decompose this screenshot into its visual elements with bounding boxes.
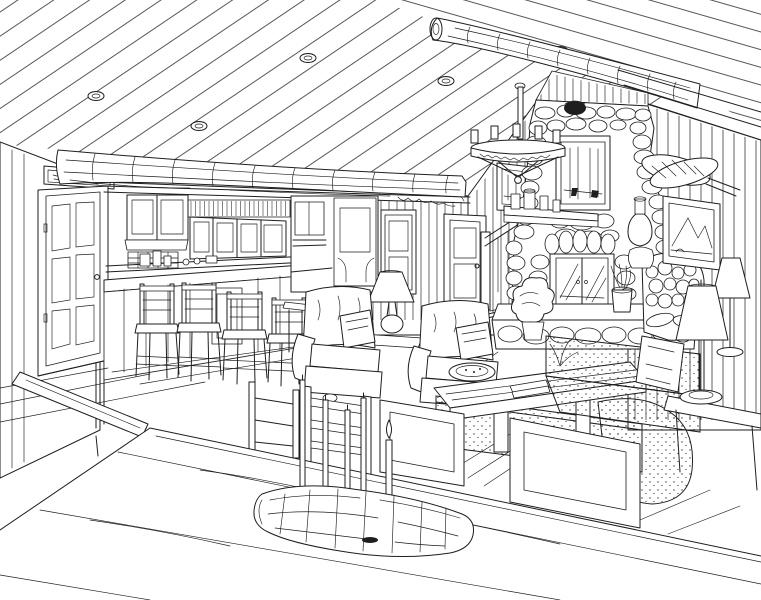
hutch-cabinet <box>291 196 378 292</box>
illustration-page: Log cabin great room — black-and-white p… <box>0 0 761 600</box>
framed-art-right <box>663 196 720 270</box>
bowl <box>449 363 495 381</box>
left-wall <box>0 142 114 478</box>
crock-on-chimney <box>564 101 586 115</box>
armchair-right-pillow <box>456 322 493 360</box>
ceiling-light-icon <box>438 77 454 86</box>
ceiling-light-icon <box>88 92 104 101</box>
ceiling-light-icon <box>300 54 316 63</box>
dining-chair-partial <box>249 382 299 458</box>
dining-chair-panel-1 <box>380 400 464 486</box>
ceiling-light-icon <box>191 122 207 131</box>
cabin-interior-drawing: Log cabin great room — black-and-white p… <box>0 0 761 600</box>
upper-cabinet-corner <box>125 195 188 250</box>
armchair-left-pillow <box>340 310 375 348</box>
entry-door <box>38 186 108 376</box>
interior-door-2 <box>444 214 486 310</box>
sofa-pillow <box>636 336 684 392</box>
firebox <box>545 230 615 308</box>
plate-rack <box>186 200 290 217</box>
upper-cabinets-run <box>190 217 286 259</box>
armchair-left <box>292 286 382 402</box>
